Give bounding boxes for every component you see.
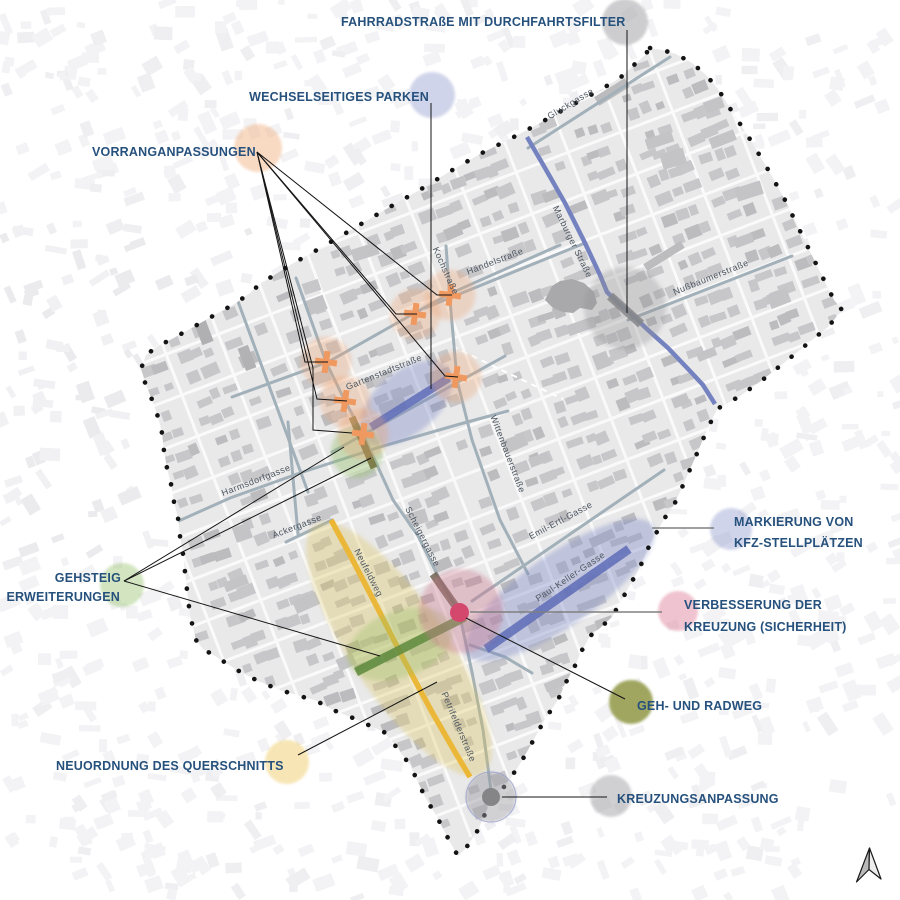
svg-text:ERWEITERUNGEN: ERWEITERUNGEN	[7, 590, 121, 604]
svg-text:GEH- UND RADWEG: GEH- UND RADWEG	[637, 699, 762, 713]
svg-text:NEUORDNUNG DES QUERSCHNITTS: NEUORDNUNG DES QUERSCHNITTS	[56, 759, 284, 773]
svg-text:VERBESSERUNG DER: VERBESSERUNG DER	[684, 598, 822, 612]
svg-text:GEHSTEIG: GEHSTEIG	[55, 571, 121, 585]
svg-text:WECHSELSEITIGES PARKEN: WECHSELSEITIGES PARKEN	[249, 90, 429, 104]
svg-text:KREUZUNG (SICHERHEIT): KREUZUNG (SICHERHEIT)	[684, 620, 847, 634]
svg-text:KFZ-STELLPLÄTZEN: KFZ-STELLPLÄTZEN	[734, 535, 863, 550]
svg-text:FAHRRADSTRAßE MIT DURCHFAHRTSF: FAHRRADSTRAßE MIT DURCHFAHRTSFILTER	[341, 15, 626, 29]
svg-text:VORRANGANPASSUNGEN: VORRANGANPASSUNGEN	[92, 145, 256, 159]
svg-text:KREUZUNGSANPASSUNG: KREUZUNGSANPASSUNG	[617, 792, 779, 806]
svg-text:MARKIERUNG VON: MARKIERUNG VON	[734, 515, 853, 529]
